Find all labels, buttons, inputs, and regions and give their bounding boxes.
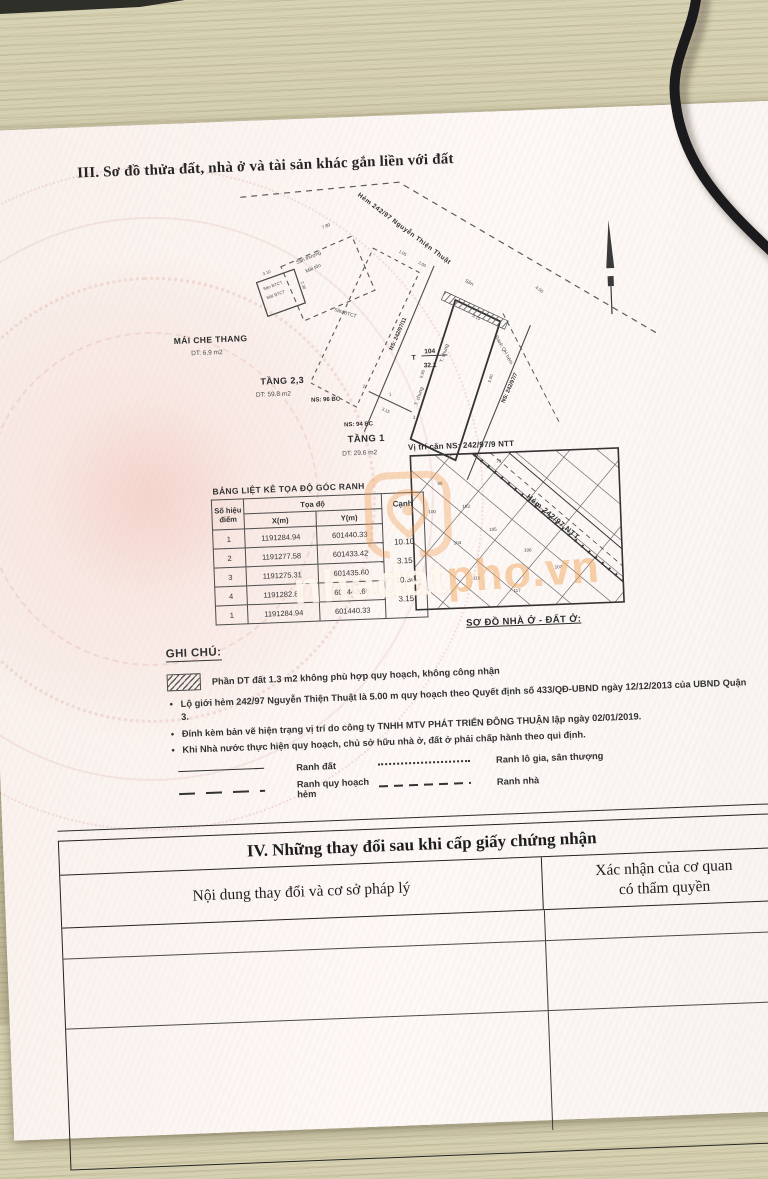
section4-row-line (66, 1001, 768, 1030)
floor23-san-label: Sân BTCT (333, 307, 357, 320)
point-1: 1 (389, 392, 392, 397)
floor23-title: TẦNG 2,3 (260, 375, 304, 387)
section4-row-line (63, 931, 768, 960)
legend-item: Ranh lô gia, sân thượng (378, 751, 604, 770)
col-point-line2: điểm (212, 514, 243, 524)
col-point-line1: Số hiệu (212, 505, 243, 515)
t-chung-2: T. chung (414, 386, 426, 406)
point-cell: 1 (213, 529, 246, 549)
point-cell: 4 (215, 586, 248, 606)
btct-label-2: Mái BTCT (266, 289, 286, 300)
roof-area: DT: 6.9 m2 (191, 349, 223, 357)
section4-col-confirm-line2: có thẩm quyền (619, 877, 711, 901)
point-cell: 2 (213, 548, 246, 568)
certificate-page: III. Sơ đồ thửa đất, nhà ở và tài sản kh… (0, 100, 768, 1141)
desk-object-shadow (0, 0, 200, 16)
dim-5-90-left: 5.90 (419, 369, 427, 379)
notes-title: GHI CHÚ: (166, 646, 222, 662)
ns-alley7-label: NS: 242/97/7 (501, 372, 520, 404)
section4-vertical-divider (544, 910, 553, 1130)
floor1-area: DT: 29.6 m2 (342, 449, 378, 457)
hatch-note-text: Phần DT đất 1.3 m2 không phù hợp quy hoạ… (212, 665, 500, 686)
col-point-header: Số hiệu điểm (211, 499, 244, 530)
san-label: Sân (464, 278, 475, 288)
section4-table: IV. Những thay đổi sau khi cấp giấy chứn… (58, 813, 768, 1171)
emblem-watermark (0, 100, 768, 131)
parcel-number: 105 (489, 527, 497, 532)
floor23-area: DT: 59.8 m2 (256, 390, 292, 398)
legend-label: Ranh lô gia, sân thượng (496, 751, 604, 765)
dim-4-00: 4.00 (534, 285, 544, 295)
plot-area: 32.1 (424, 362, 437, 369)
section4-col-confirm-line1: Xác nhận của cơ quan (595, 856, 733, 881)
legend-label: Ranh nhà (497, 775, 540, 787)
ranh-qh-hem-label: Ranh QH hẻm (493, 335, 514, 366)
point-cell: 3 (214, 567, 247, 587)
legend-item: Ranh nhà (379, 775, 540, 791)
legend-label: Ranh đất (296, 761, 336, 773)
parcel-number: 103 (462, 504, 470, 509)
point-cell: 1 (215, 605, 248, 625)
dim-2-00: 2.00 (417, 260, 427, 269)
ns-94-label: NS: 94 BC (344, 421, 374, 428)
legend-item: Ranh đất (170, 759, 378, 777)
section4-body (62, 901, 768, 1149)
inset-road-edge-2 (508, 448, 622, 553)
notes-section: GHI CHÚ: Phần DT đất 1.3 m2 không phù hợ… (165, 621, 768, 811)
parcel-number: 71 (496, 458, 502, 463)
dim-1-05: 1.05 (398, 249, 408, 258)
legend-item: Ranh quy hoạch hẻm (171, 776, 380, 804)
legend-label: Ranh quy hoạch hẻm (297, 776, 380, 799)
watermark-text-part1: nhadat (292, 552, 449, 614)
dotted-line-swatch (378, 760, 470, 766)
roof-title: MÁI CHE THANG (174, 333, 248, 346)
longdash-line-swatch (179, 790, 265, 795)
photo-of-land-certificate: { "document": { "section3_title": "III. … (0, 0, 768, 1024)
point-2: 2 (363, 384, 366, 389)
roof-terrace-outline (280, 235, 376, 322)
dash-line-swatch (379, 782, 471, 788)
floor1-title: TẦNG 1 (347, 433, 385, 445)
watermark-text-part2: pho.vn (445, 540, 602, 602)
dim-3-15-connector: 3.15 (381, 406, 391, 414)
dim-3-10: 3.10 (262, 269, 272, 277)
north-arrow-icon (604, 220, 616, 314)
qh-boundary-line (503, 311, 560, 426)
point-3: 3 (413, 415, 416, 420)
dim-7-80: 7.80 (321, 222, 331, 230)
dim-5-90-right: 5.90 (487, 373, 495, 383)
plot-t: T (411, 355, 416, 362)
roof-terrace-label-2: Mái tôn (305, 263, 323, 275)
solid-line-swatch (178, 768, 264, 772)
plot-number: 104 (424, 348, 435, 355)
section4-col-confirm: Xác nhận của cơ quan có thẩm quyền (542, 848, 768, 910)
ns-96-label: NS: 96 BC (311, 397, 341, 404)
hatch-swatch (167, 673, 202, 691)
